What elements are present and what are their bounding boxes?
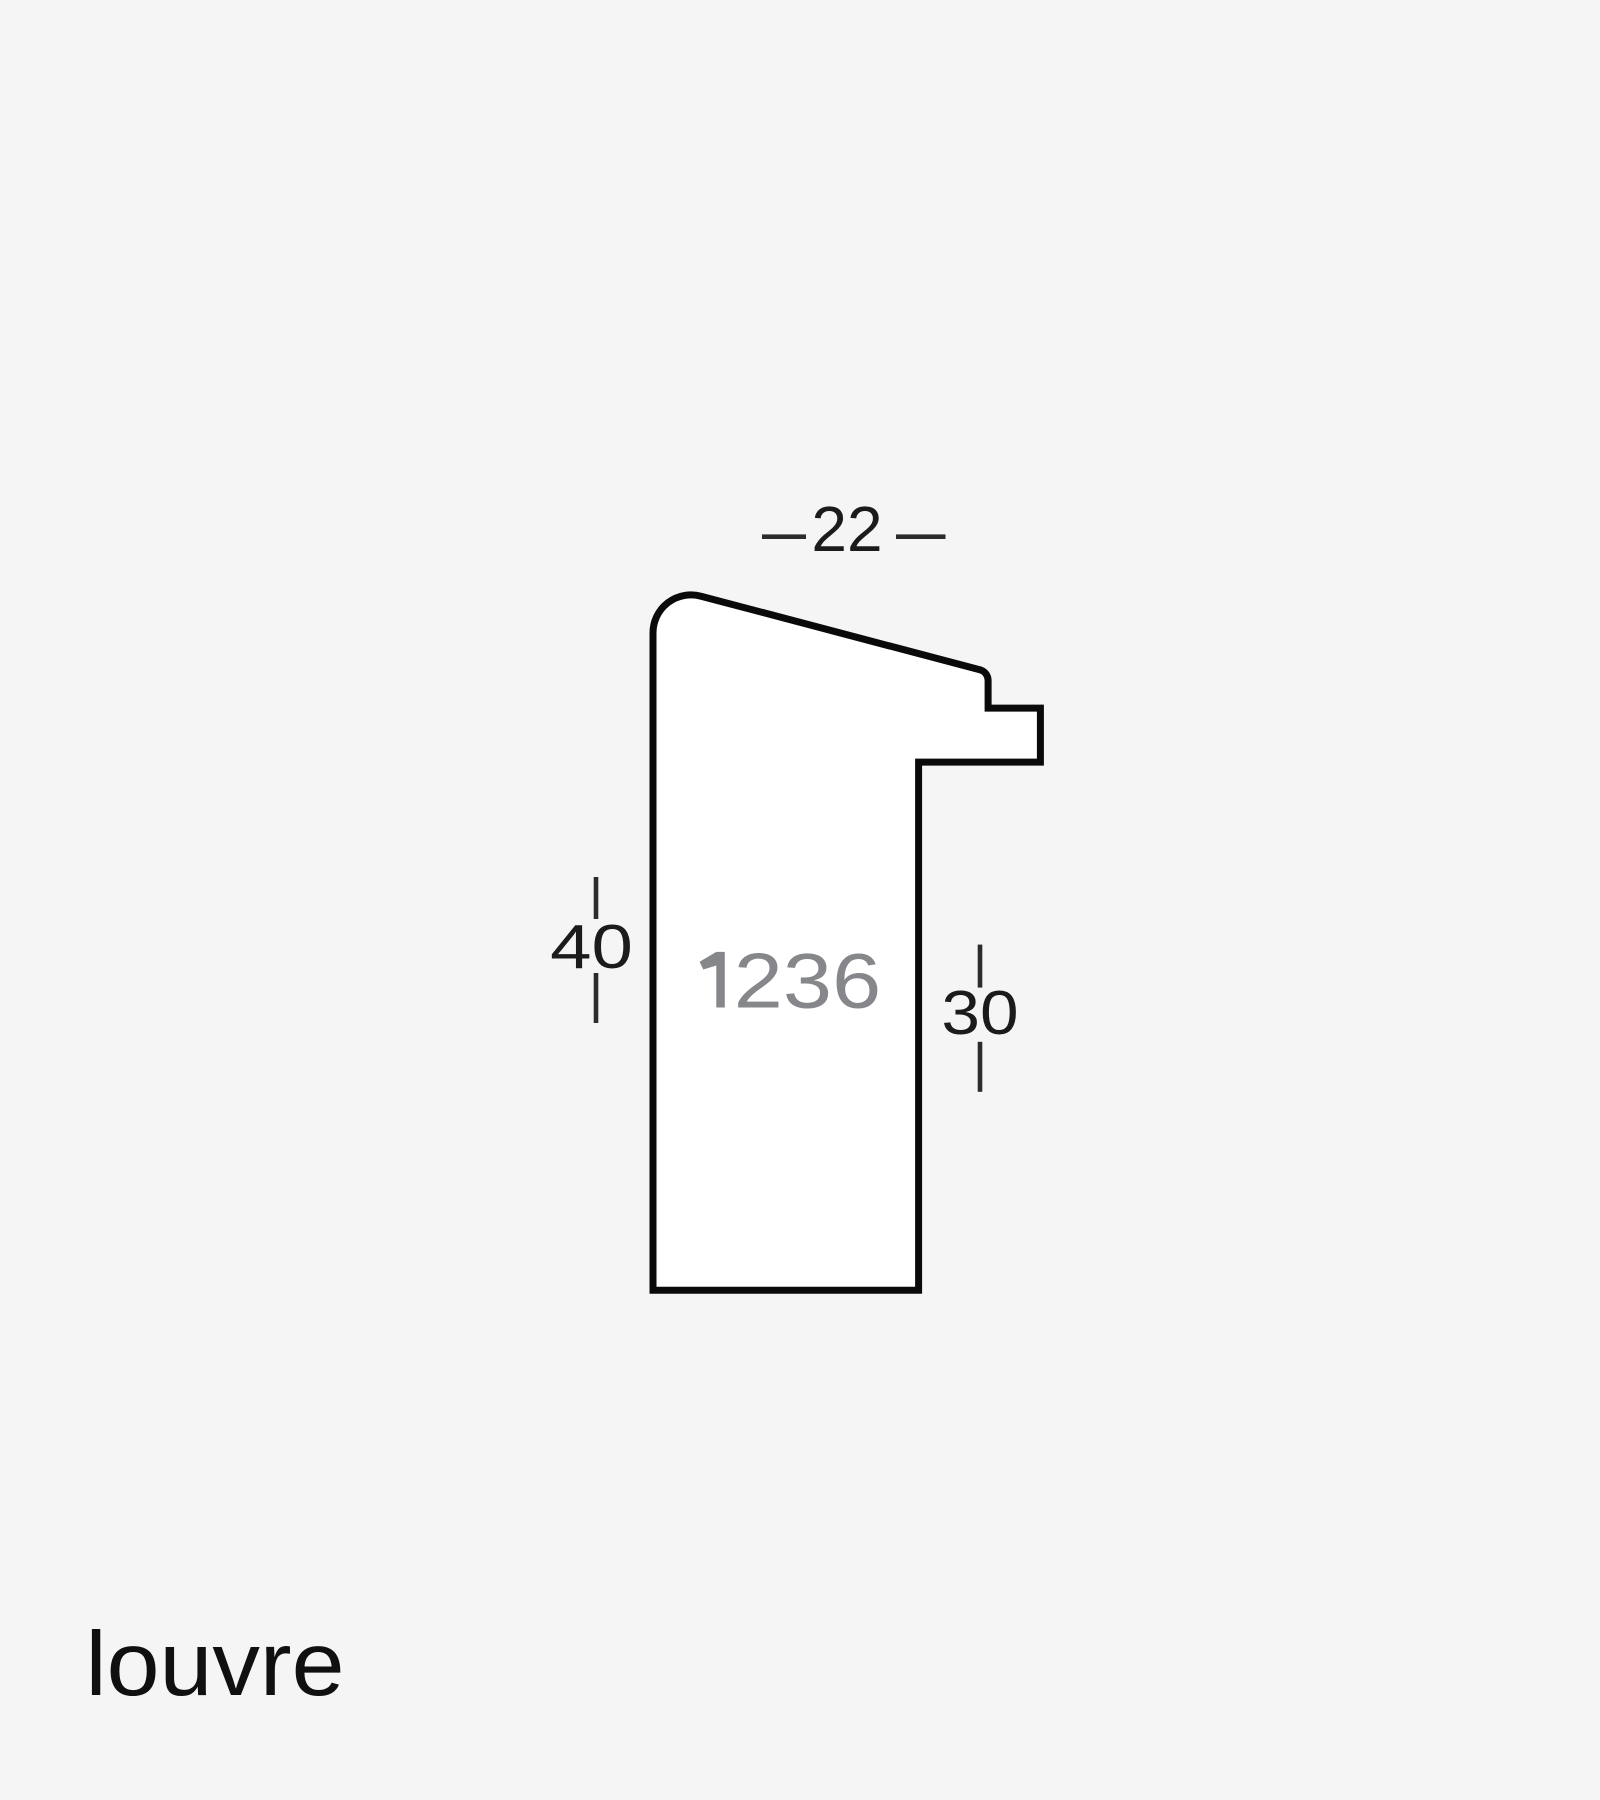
svg-text:40: 40 [550, 912, 633, 982]
svg-text:louvre: louvre [86, 1613, 345, 1715]
svg-text:30: 30 [941, 978, 1018, 1048]
svg-text:22: 22 [811, 493, 882, 565]
svg-text:236: 236 [734, 937, 881, 1024]
